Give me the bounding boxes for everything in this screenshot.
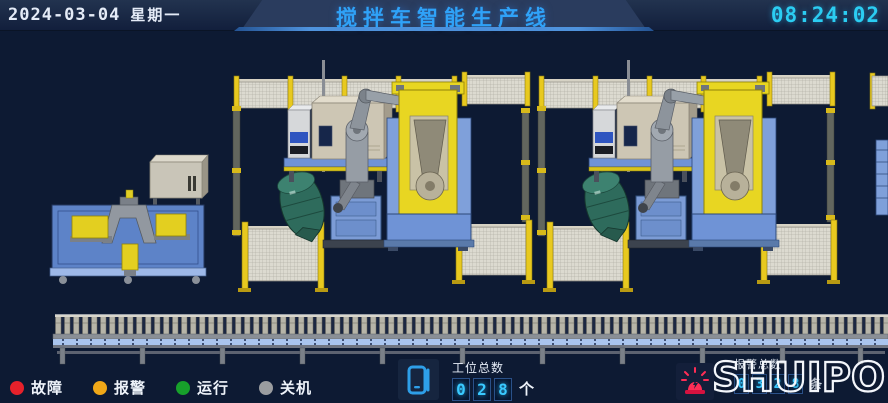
robot-cell-1 — [232, 60, 535, 292]
device-icon — [402, 363, 436, 397]
left-fixture-station — [50, 155, 208, 284]
fixture-clamp-left — [72, 216, 108, 238]
siren-icon — [679, 366, 711, 397]
production-line-scene: KUKA — [0, 0, 888, 403]
station-counter: 工位总数 0 2 8 个 — [452, 359, 534, 401]
warning-dot-icon — [93, 381, 107, 395]
warning-label: 报警 — [114, 377, 146, 398]
date-text: 2024-03-04 — [8, 5, 120, 25]
station-counter-unit: 个 — [519, 378, 534, 401]
off-dot-icon — [259, 381, 273, 395]
running-dot-icon — [176, 381, 190, 395]
station-counter-label: 工位总数 — [452, 359, 534, 376]
fault-label: 故障 — [31, 377, 63, 398]
station-counter-tile[interactable] — [398, 359, 439, 400]
right-edge-structures — [870, 73, 888, 215]
brand-logo: SHUIPO — [712, 356, 888, 400]
robot-cell-2 — [537, 60, 840, 292]
off-label: 关机 — [280, 377, 312, 398]
status-chip-running: 运行 — [176, 377, 229, 398]
status-chip-fault: 故障 — [10, 377, 63, 398]
status-chip-off: 关机 — [259, 377, 312, 398]
fixture-clamp-right — [156, 214, 186, 236]
page-title: 搅拌车智能生产线 — [336, 2, 552, 32]
station-digit: 2 — [473, 378, 491, 401]
running-label: 运行 — [197, 377, 229, 398]
fault-dot-icon — [10, 381, 24, 395]
station-digit: 0 — [452, 378, 470, 401]
header-bar: 2024-03-04星期一 搅拌车智能生产线 08:24:02 — [0, 0, 888, 31]
alarm-indicator-tile[interactable] — [676, 363, 714, 400]
date-display: 2024-03-04星期一 — [8, 4, 181, 25]
status-legend: 故障 报警 运行 关机 — [10, 377, 312, 398]
weekday-text: 星期一 — [130, 6, 181, 24]
station-digit: 8 — [494, 378, 512, 401]
status-chip-warning: 报警 — [93, 377, 146, 398]
station-counter-digits: 0 2 8 个 — [452, 378, 534, 401]
clock-display: 08:24:02 — [771, 3, 880, 27]
